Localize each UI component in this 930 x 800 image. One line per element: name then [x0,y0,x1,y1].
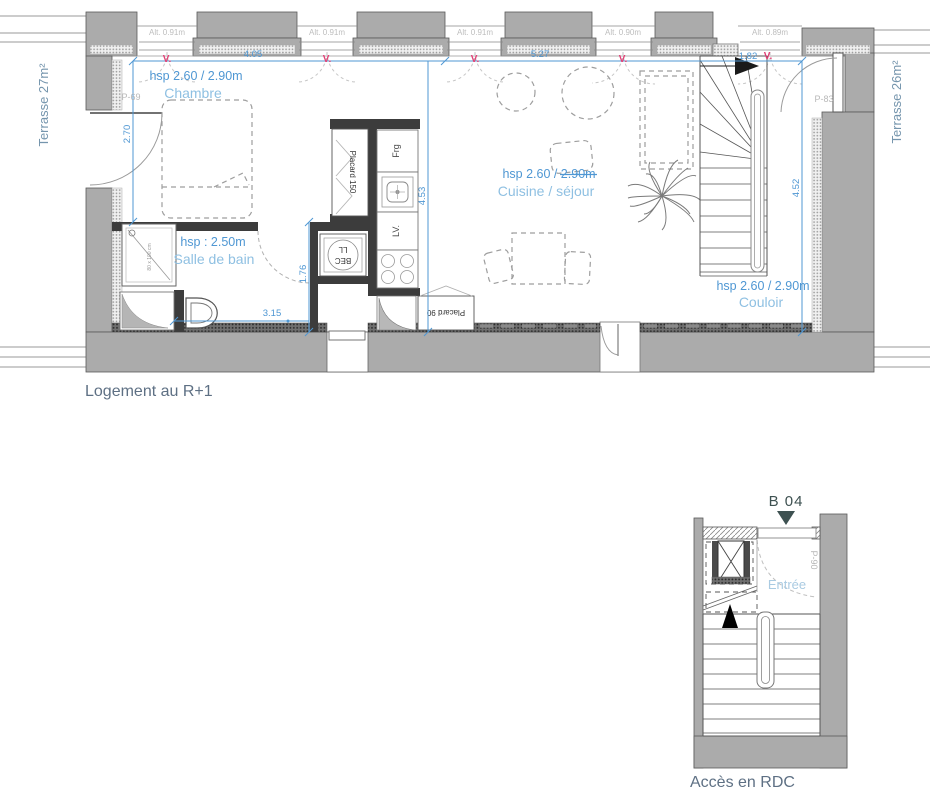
closet-90: Placard 90 [418,286,474,330]
dim-1-82: 1.82 [739,51,758,62]
couloir-hsp-label: hsp 2.60 / 2.90m [716,279,809,293]
door-p69-label: P-69 [121,92,140,102]
couloir-name-label: Couloir [739,294,784,310]
room-labels: hsp 2.60 / 2.90m Chambre hsp : 2.50m Sal… [149,69,809,310]
window-3-alt-label: Alt. 0.91m [457,28,493,37]
door-p83-label: P-83 [814,94,833,104]
door-p90-label: P-90 [809,550,819,569]
rdc-stair-direction-arrow [722,604,738,628]
cuisine-hsp-label: hsp 2.60 / 2.90m [502,167,595,181]
vanity [120,292,174,330]
kitchen-sink [377,172,418,212]
bath-name-label: Salle de bain [174,251,255,267]
rdc-plan-caption: Accès en RDC [690,774,795,791]
door-terrace-left [90,113,162,185]
dishwasher-label: LV. [391,225,401,237]
window-4-alt-label: Alt. 0.90m [605,28,641,37]
dining-chair-right [564,251,591,284]
vent-label-1: V. [163,54,172,65]
dim-4-52: 4.52 [791,179,802,198]
vent-label-5: V. [764,51,773,62]
washer-label-2: LL [338,245,347,254]
closet-150: Placard 150 [332,129,368,216]
lounge-chair [497,73,535,111]
sofa [640,71,693,169]
plant [628,160,700,230]
fridge: Frg [377,130,418,172]
shower-size-label: 80 x 100 cm [147,243,153,270]
cooktop [377,250,418,288]
main-floor-plan: Placard 150 Frg LV. [0,12,930,400]
bed-fold [214,173,249,187]
window-2-alt-label: Alt. 0.91m [309,28,345,37]
fridge-label: Frg [391,144,401,158]
unit-label: B 04 [769,493,804,510]
toilet [186,298,217,328]
window-5-alt-label: Alt. 0.89m [752,28,788,37]
door-terrace-right [781,53,843,112]
terrace-left-label: Terrasse 27m² [36,63,51,147]
washer-label-1: BEC [335,256,352,265]
vent-label-4: V. [619,54,628,65]
vent-label-3: V. [471,54,480,65]
bath-hsp-label: hsp : 2.50m [180,235,245,249]
dishwasher: LV. [377,212,418,250]
dim-4-05: 4.05 [244,49,263,60]
unit-entry-marker [777,511,795,525]
shower: 80 x 100 cm [122,224,176,286]
window-1-alt-label: Alt. 0.91m [149,28,185,37]
dim-1-76: 1.76 [298,265,309,284]
vent-label-2: V. [323,54,332,65]
bed [162,100,252,218]
dim-5-27: 5.27 [531,49,550,60]
staircase-main [700,56,767,276]
dim-4-53: 4.53 [417,187,428,206]
closet-90-label: Placard 90 [426,308,465,317]
terrace-right-label: Terrasse 26m² [889,60,904,144]
floor-plan-drawing: Placard 150 Frg LV. [0,0,930,800]
round-table [562,67,614,119]
chambre-name-label: Chambre [164,85,222,101]
washing-machine: BEC LL [320,234,366,276]
floor-plan-page: Placard 150 Frg LV. [0,0,930,800]
dim-2-70: 2.70 [122,125,133,144]
handrail [751,90,764,272]
entree-label: Entrée [768,577,806,592]
cuisine-name-label: Cuisine / séjour [498,183,595,199]
rdc-staircase [703,586,820,736]
dining-table [512,233,565,284]
closet-150-label: Placard 150 [348,151,357,194]
rdc-handrail [757,612,774,688]
door-bottom-service [329,331,365,340]
counter-corner [377,296,416,330]
main-plan-caption: Logement au R+1 [85,383,213,400]
rdc-plan: B 04 P-90 Entrée [690,493,847,791]
chambre-hsp-label: hsp 2.60 / 2.90m [149,69,242,83]
rdc-entry-door: P-90 Entrée [757,528,819,597]
dim-3-15: 3.15 [263,308,282,319]
dining-chair-left [483,248,515,284]
rdc-shaft [706,541,757,612]
